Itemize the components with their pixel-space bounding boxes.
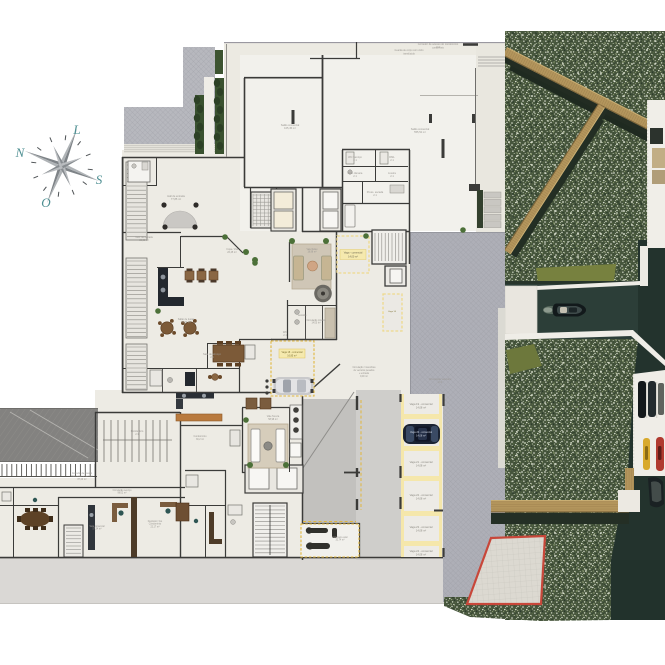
svg-text:2.1: 2.1 (390, 174, 394, 178)
svg-text:Bicicletário e Serviço: Bicicletário e Serviço (71, 475, 93, 478)
svg-text:58,98 m²: 58,98 m² (268, 418, 278, 421)
svg-text:Circulação / manobras: Circulação / manobras (353, 366, 377, 369)
svg-text:14,08 m²: 14,08 m² (416, 528, 426, 532)
svg-text:14,08 m²: 14,08 m² (416, 496, 426, 500)
svg-text:2.1: 2.1 (353, 158, 357, 162)
svg-text:14,08 m²: 14,08 m² (416, 434, 426, 437)
svg-text:translúcido: translúcido (403, 52, 415, 55)
svg-text:2.1: 2.1 (353, 174, 357, 178)
svg-text:Condomínio: Condomínio (149, 524, 162, 526)
svg-text:2.3: 2.3 (438, 380, 442, 384)
svg-text:Circulação serviço: Circulação serviço (113, 489, 132, 492)
svg-text:77,85 m²: 77,85 m² (171, 197, 181, 201)
svg-text:Vaga 19 - comercial: Vaga 19 - comercial (410, 402, 433, 406)
svg-text:33,00 m²: 33,00 m² (139, 239, 149, 242)
svg-text:14,08 m²: 14,08 m² (416, 405, 426, 409)
svg-text:2.1: 2.1 (390, 158, 394, 162)
svg-text:2.3: 2.3 (135, 432, 139, 436)
svg-text:Vaga 22 - comercial: Vaga 22 - comercial (410, 493, 433, 497)
svg-text:32,74 m²: 32,74 m² (335, 539, 344, 542)
svg-text:Corredor de acesso: Corredor de acesso (72, 472, 93, 475)
svg-text:26,45 m²: 26,45 m² (227, 251, 237, 254)
svg-text:Vaga 14: Vaga 14 (388, 311, 397, 313)
svg-text:e entrada: e entrada (359, 372, 369, 375)
svg-text:9,00 m²: 9,00 m² (360, 375, 368, 378)
svg-text:22,17 m²: 22,17 m² (150, 526, 159, 529)
svg-text:57,34 m²: 57,34 m² (92, 528, 101, 531)
svg-text:87,20 m²: 87,20 m² (77, 478, 86, 481)
svg-text:Vale Relax: Vale Relax (307, 249, 319, 251)
svg-text:2.1: 2.1 (283, 333, 287, 337)
svg-text:Vale bem estar: Vale bem estar (332, 536, 348, 539)
svg-text:Vaga 23 - comercial: Vaga 23 - comercial (410, 525, 433, 529)
svg-text:98,02 m²: 98,02 m² (117, 492, 126, 495)
svg-text:105,45 m²: 105,45 m² (284, 126, 296, 130)
svg-text:14,05 m²: 14,05 m² (311, 322, 320, 325)
svg-text:16,85 m²: 16,85 m² (287, 355, 297, 358)
svg-text:S: S (96, 172, 103, 187)
svg-text:2.1: 2.1 (210, 355, 214, 359)
svg-text:Vaga 21 - comercial: Vaga 21 - comercial (410, 460, 433, 464)
svg-text:2.1: 2.1 (373, 193, 377, 197)
svg-text:Sala comercial: Sala comercial (89, 525, 105, 528)
svg-text:Circulação privada: Circulação privada (306, 319, 326, 322)
svg-text:Vestiário: Vestiário (298, 314, 308, 317)
svg-text:L: L (72, 122, 80, 137)
svg-text:de veículos pesados: de veículos pesados (354, 370, 376, 372)
svg-text:O: O (41, 195, 51, 210)
svg-text:14,08 m²: 14,08 m² (416, 463, 426, 467)
svg-text:14,08 m²: 14,08 m² (416, 552, 426, 556)
svg-text:55,74 m²: 55,74 m² (181, 321, 191, 324)
svg-text:18,98 m²: 18,98 m² (307, 251, 316, 254)
svg-text:30,2 m²: 30,2 m² (196, 438, 204, 441)
svg-text:N: N (15, 145, 26, 160)
svg-text:Vaga 24 - comercial: Vaga 24 - comercial (410, 549, 433, 553)
svg-text:Vaga - comercial: Vaga - comercial (344, 252, 363, 255)
svg-text:555,52 m²: 555,52 m² (414, 130, 426, 134)
svg-text:Depósito / lixo: Depósito / lixo (148, 520, 163, 523)
svg-text:14,00 m²: 14,00 m² (348, 255, 358, 258)
svg-text:condomínio: condomínio (432, 47, 445, 49)
